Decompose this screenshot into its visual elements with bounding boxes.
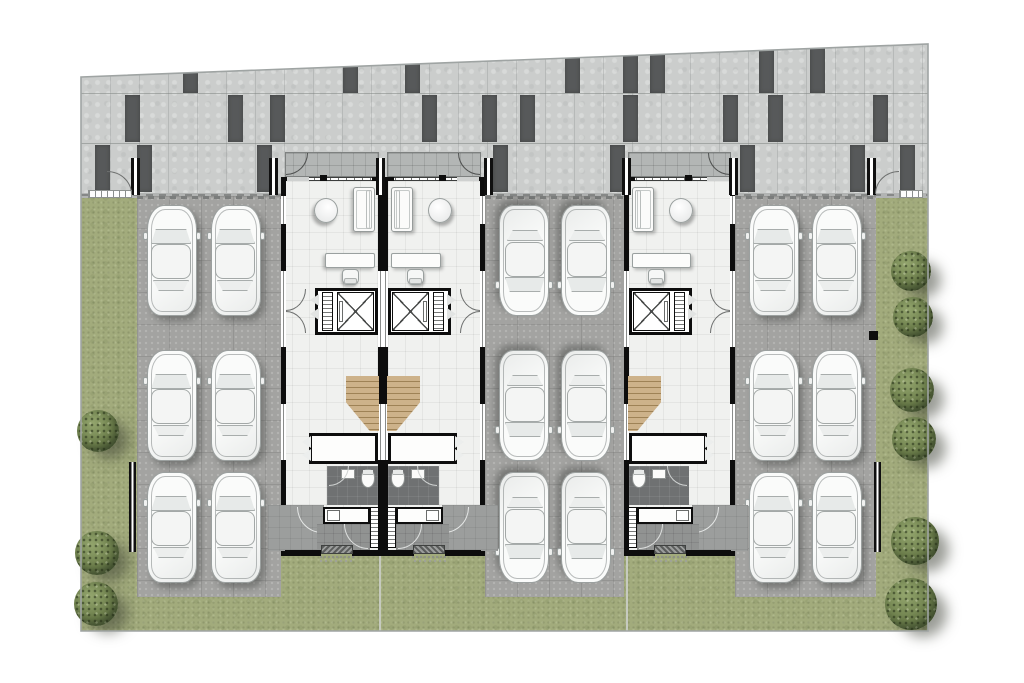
site-border	[0, 0, 1024, 683]
site-plan	[0, 0, 1024, 683]
